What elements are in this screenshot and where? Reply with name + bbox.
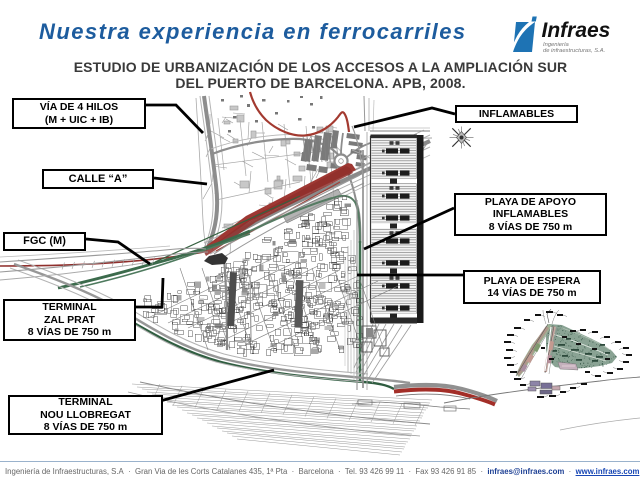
- svg-text:Infraes: Infraes: [542, 19, 611, 42]
- svg-text:de infraestructuras, S.A.: de infraestructuras, S.A.: [543, 48, 605, 54]
